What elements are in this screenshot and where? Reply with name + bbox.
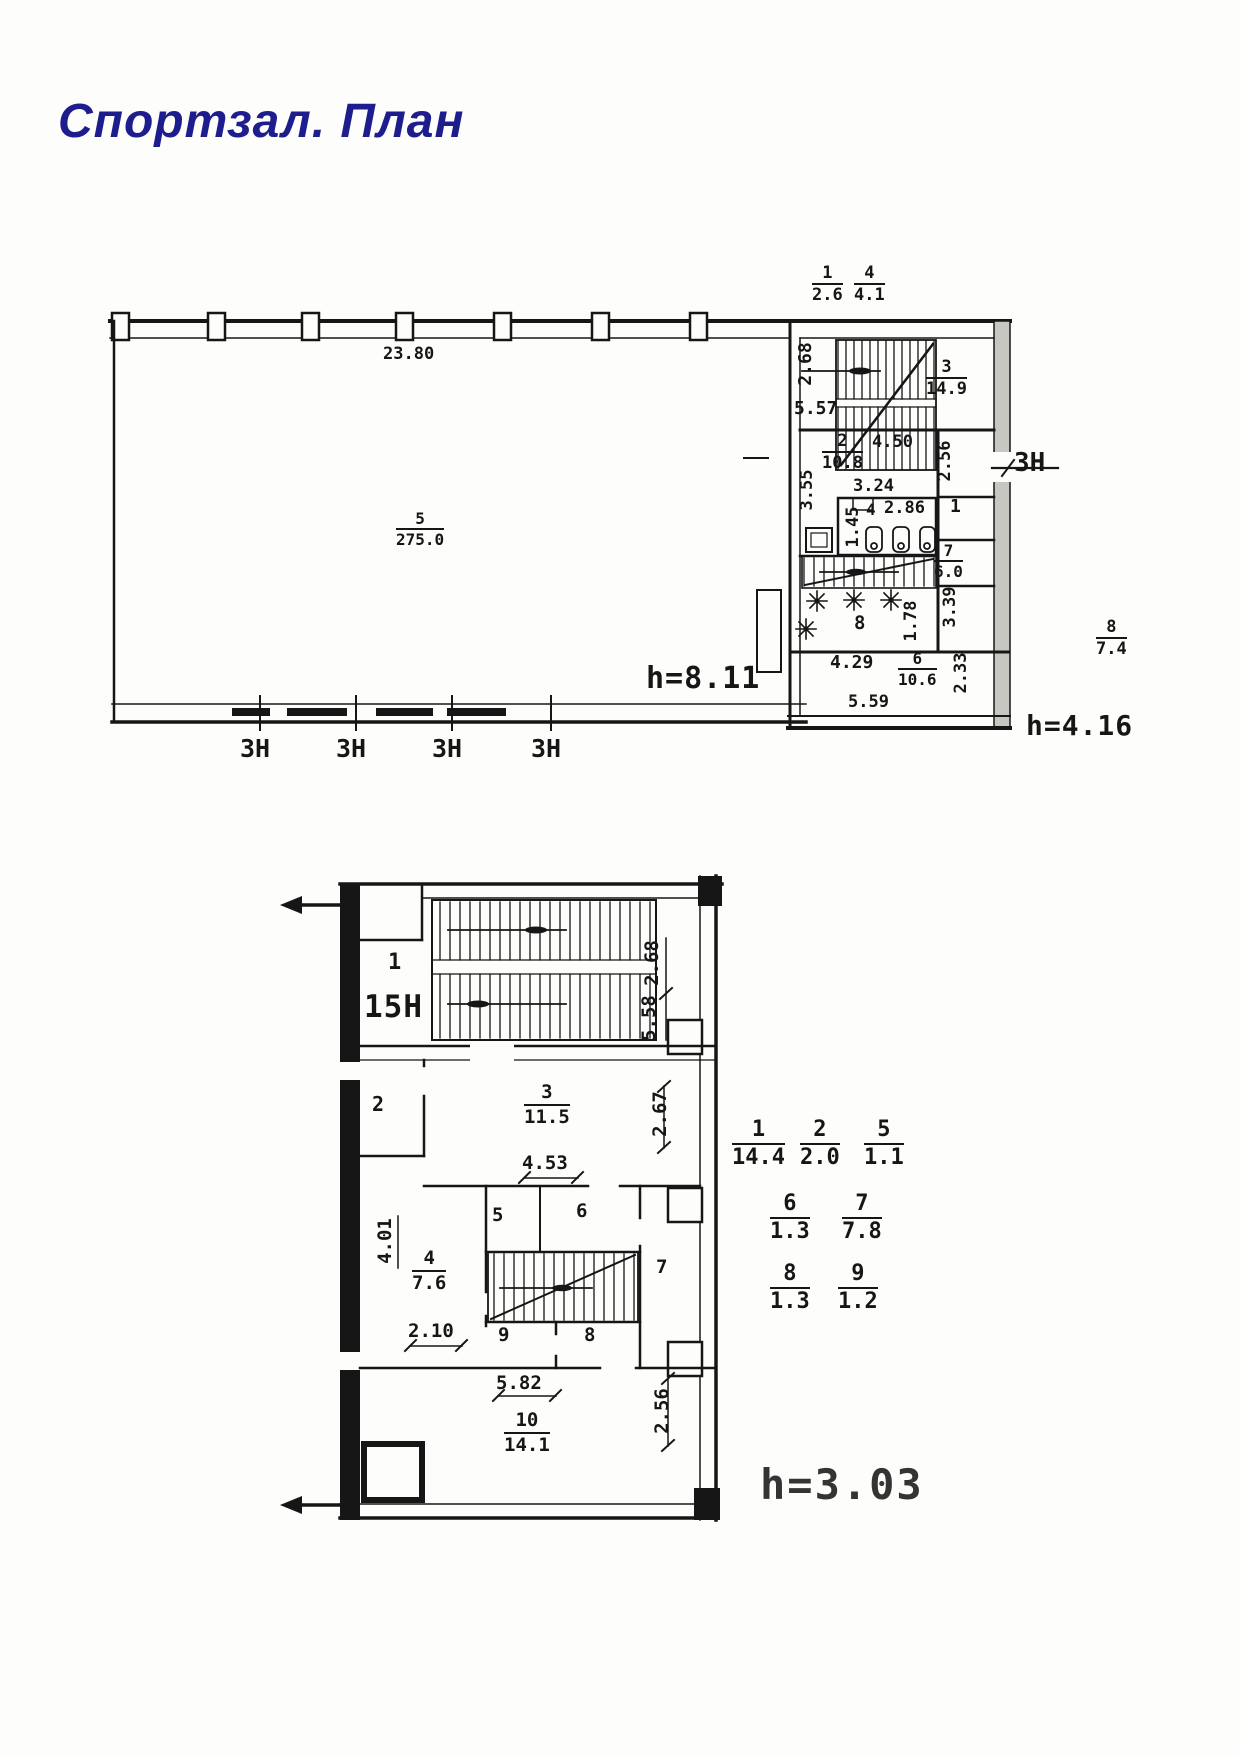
stair-room-height-dim: 2.68 <box>797 334 817 394</box>
urinal-fixtures <box>866 527 935 552</box>
lower-height-label: h=3.03 <box>760 1464 924 1506</box>
dim-210: 2.10 <box>408 1322 454 1341</box>
wc-top-dim: 2.86 <box>884 500 925 517</box>
room2-top-dim: 4.50 <box>872 434 913 451</box>
wc-left-dim: 1.45 <box>845 497 865 557</box>
fraction-numerator: 4 <box>412 1248 446 1272</box>
fraction-numerator: 7 <box>934 542 963 562</box>
shower-icons <box>796 590 901 639</box>
hall-top-dimension: 23.80 <box>383 346 434 363</box>
scanned-floor-plan-page: Спортзал. План <box>0 0 1241 1754</box>
room6-right-dim: 2.33 <box>953 643 973 703</box>
fraction-denominator: 4.1 <box>854 285 885 304</box>
fraction-denominator: 1.1 <box>864 1145 904 1170</box>
room7-area-fraction: 7 6.0 <box>934 542 963 581</box>
room2-right-dim: 2.56 <box>937 431 957 491</box>
fraction-numerator: 10 <box>504 1410 550 1434</box>
fraction-denominator: 14.9 <box>926 379 967 398</box>
main-staircase <box>432 900 656 1040</box>
area-frac-7: 7 7.8 <box>842 1192 882 1244</box>
fraction-numerator: 5 <box>396 510 444 530</box>
annex-top-fraction-1: 1 2.6 <box>812 264 843 305</box>
room2-left-dim: 3.55 <box>799 460 819 520</box>
fraction-numerator: 1 <box>812 264 843 285</box>
fraction-numerator: 9 <box>838 1262 878 1289</box>
fraction-denominator: 2.0 <box>800 1145 840 1170</box>
window-label-1: ЗН <box>240 736 270 761</box>
fraction-numerator: 8 <box>770 1262 810 1289</box>
room7-below-dim: 3.39 <box>942 577 962 637</box>
fraction-denominator: 14.4 <box>732 1145 785 1170</box>
fraction-denominator: 7.4 <box>1096 639 1127 658</box>
fraction-numerator: 6 <box>898 650 937 670</box>
shower-room-number: 8 <box>854 614 865 633</box>
window-label-4: ЗН <box>531 736 561 761</box>
annex-door-label: ЗН <box>1014 450 1045 476</box>
fraction-numerator: 7 <box>842 1192 882 1219</box>
hall-room-area-fraction: 5 275.0 <box>396 510 444 549</box>
area-frac-1: 1 14.4 <box>732 1118 785 1170</box>
fraction-numerator: 3 <box>524 1082 570 1106</box>
annex-top-fraction-2: 4 4.1 <box>854 264 885 305</box>
dim-582: 5.82 <box>496 1374 542 1393</box>
lower-room1-number: 1 <box>388 952 401 974</box>
hall-height-label: h=8.11 <box>646 664 760 694</box>
room2-area-fraction: 2 10.8 <box>822 432 863 473</box>
lower-room3-fraction: 3 11.5 <box>524 1082 570 1127</box>
right-wall-piers <box>668 1020 702 1376</box>
lower-room5-number: 5 <box>492 1206 503 1225</box>
room2-mid-dim: 3.24 <box>853 478 894 495</box>
lower-room10-fraction: 10 14.1 <box>504 1410 550 1455</box>
fraction-numerator: 2 <box>822 432 863 453</box>
stair-room-width-dim: 5.57 <box>794 400 837 418</box>
fraction-denominator: 7.6 <box>412 1272 446 1294</box>
fraction-denominator: 14.1 <box>504 1434 550 1456</box>
window-label-3: ЗН <box>432 736 462 761</box>
dim-268: 2.68 <box>643 933 663 993</box>
lower-room4-fraction: 4 7.6 <box>412 1248 446 1293</box>
annex-room1-number: 1 <box>950 498 961 516</box>
dim-558: 5.58 <box>640 988 660 1048</box>
fraction-denominator: 11.5 <box>524 1106 570 1128</box>
dim-401: 4.01 <box>376 1211 396 1271</box>
unit-label-15n: 15Н <box>364 992 423 1023</box>
lower-room7-number: 7 <box>656 1258 667 1277</box>
area-frac-9: 9 1.2 <box>838 1262 878 1314</box>
area-frac-6: 6 1.3 <box>770 1192 810 1244</box>
fraction-denominator: 1.3 <box>770 1289 810 1314</box>
fraction-numerator: 2 <box>800 1118 840 1145</box>
fraction-denominator: 1.2 <box>838 1289 878 1314</box>
annex-side-fraction: 8 7.4 <box>1096 618 1127 659</box>
bottom-wall-segments <box>232 708 506 716</box>
fraction-numerator: 3 <box>926 358 967 379</box>
dim-453: 4.53 <box>522 1154 568 1173</box>
area-frac-5: 5 1.1 <box>864 1118 904 1170</box>
window-label-2: ЗН <box>336 736 366 761</box>
dim-267: 2.67 <box>651 1084 671 1144</box>
fraction-numerator: 8 <box>1096 618 1127 639</box>
dim-256: 2.56 <box>653 1381 673 1441</box>
fraction-numerator: 6 <box>770 1192 810 1219</box>
lower-staircase <box>802 556 936 588</box>
fraction-denominator: 7.8 <box>842 1219 882 1244</box>
annex-height-label: h=4.16 <box>1026 712 1133 740</box>
fraction-denominator: 2.6 <box>812 285 843 304</box>
shower-room-right-dim: 1.78 <box>903 591 923 651</box>
top-wall-columns <box>112 313 707 340</box>
fraction-denominator: 10.6 <box>898 670 937 688</box>
fraction-denominator: 275.0 <box>396 530 444 548</box>
middle-staircase <box>488 1252 638 1322</box>
area-frac-2: 2 2.0 <box>800 1118 840 1170</box>
lower-room8-number: 8 <box>584 1326 595 1345</box>
fraction-denominator: 10.8 <box>822 453 863 472</box>
fraction-numerator: 5 <box>864 1118 904 1145</box>
area-frac-8: 8 1.3 <box>770 1262 810 1314</box>
lower-room2-number: 2 <box>372 1094 384 1114</box>
fraction-numerator: 1 <box>732 1118 785 1145</box>
fraction-denominator: 1.3 <box>770 1219 810 1244</box>
room6-bottom-dim: 5.59 <box>848 694 889 711</box>
fraction-numerator: 4 <box>854 264 885 285</box>
room6-area-fraction: 6 10.6 <box>898 650 937 689</box>
stair-room-area-fraction: 3 14.9 <box>926 358 967 399</box>
shower-room-bottom-dim: 4.29 <box>830 654 873 672</box>
sink-fixture <box>806 528 832 552</box>
lower-room6-number: 6 <box>576 1202 587 1221</box>
lower-room9-number: 9 <box>498 1326 509 1345</box>
wc-room-number: 4 <box>866 502 876 518</box>
floor-plan-linework <box>0 0 1241 1754</box>
